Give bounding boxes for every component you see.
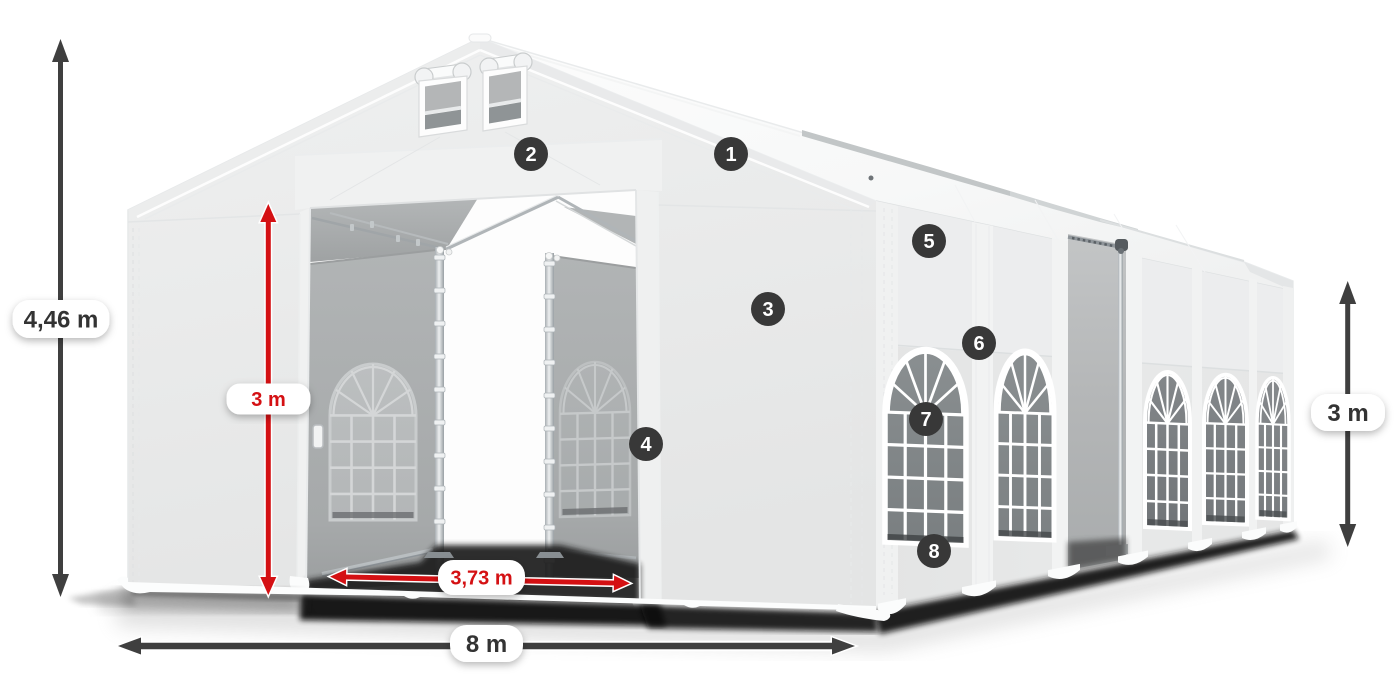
svg-text:3,73 m: 3,73 m — [450, 568, 512, 590]
svg-text:3 m: 3 m — [251, 389, 285, 411]
svg-text:1: 1 — [725, 144, 736, 166]
svg-text:2: 2 — [525, 144, 536, 166]
svg-text:5: 5 — [923, 231, 934, 253]
svg-text:6: 6 — [973, 333, 984, 355]
svg-text:3: 3 — [762, 299, 773, 321]
svg-text:4,46 m: 4,46 m — [24, 307, 99, 334]
svg-text:8: 8 — [928, 541, 939, 563]
svg-text:7: 7 — [920, 409, 931, 431]
svg-text:4: 4 — [640, 434, 652, 456]
svg-text:8 m: 8 m — [466, 631, 507, 658]
svg-text:3 m: 3 m — [1327, 400, 1368, 427]
